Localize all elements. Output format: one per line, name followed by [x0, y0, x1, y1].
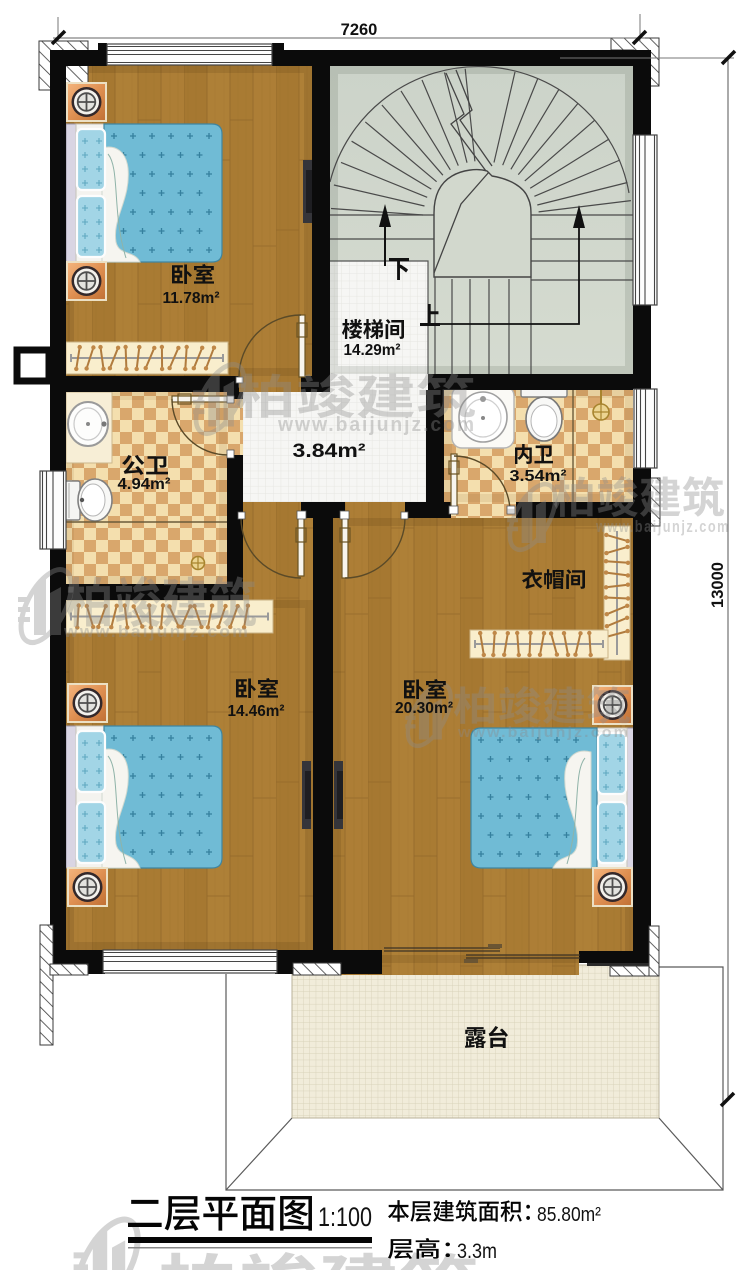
svg-text:www.baijunjz.com: www.baijunjz.com [457, 724, 630, 741]
svg-text:3.54m²: 3.54m² [510, 468, 567, 485]
svg-text:7260: 7260 [341, 21, 378, 39]
svg-text:20.30m²: 20.30m² [395, 700, 453, 717]
svg-text:3.84m²: 3.84m² [293, 441, 366, 462]
svg-text:www.baijunjz.com: www.baijunjz.com [595, 517, 730, 536]
svg-text:4.94m²: 4.94m² [118, 476, 171, 493]
svg-text:www.baijunjz.com: www.baijunjz.com [277, 414, 476, 436]
svg-text:3.3m: 3.3m [457, 1240, 497, 1263]
svg-text:www.baijunjz.com: www.baijunjz.com [63, 622, 250, 641]
svg-text:13000: 13000 [709, 562, 727, 608]
svg-text:11.78m²: 11.78m² [163, 290, 220, 307]
svg-text:14.29m²: 14.29m² [344, 342, 401, 359]
svg-text:1:100: 1:100 [318, 1202, 372, 1232]
svg-text:14.46m²: 14.46m² [228, 703, 285, 720]
svg-text:85.80m²: 85.80m² [537, 1204, 601, 1226]
